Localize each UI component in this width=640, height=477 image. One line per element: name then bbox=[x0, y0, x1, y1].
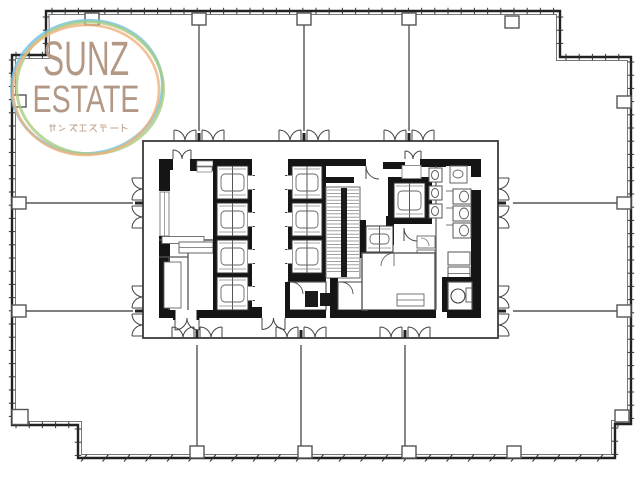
svg-text:ESTATE: ESTATE bbox=[33, 79, 140, 121]
